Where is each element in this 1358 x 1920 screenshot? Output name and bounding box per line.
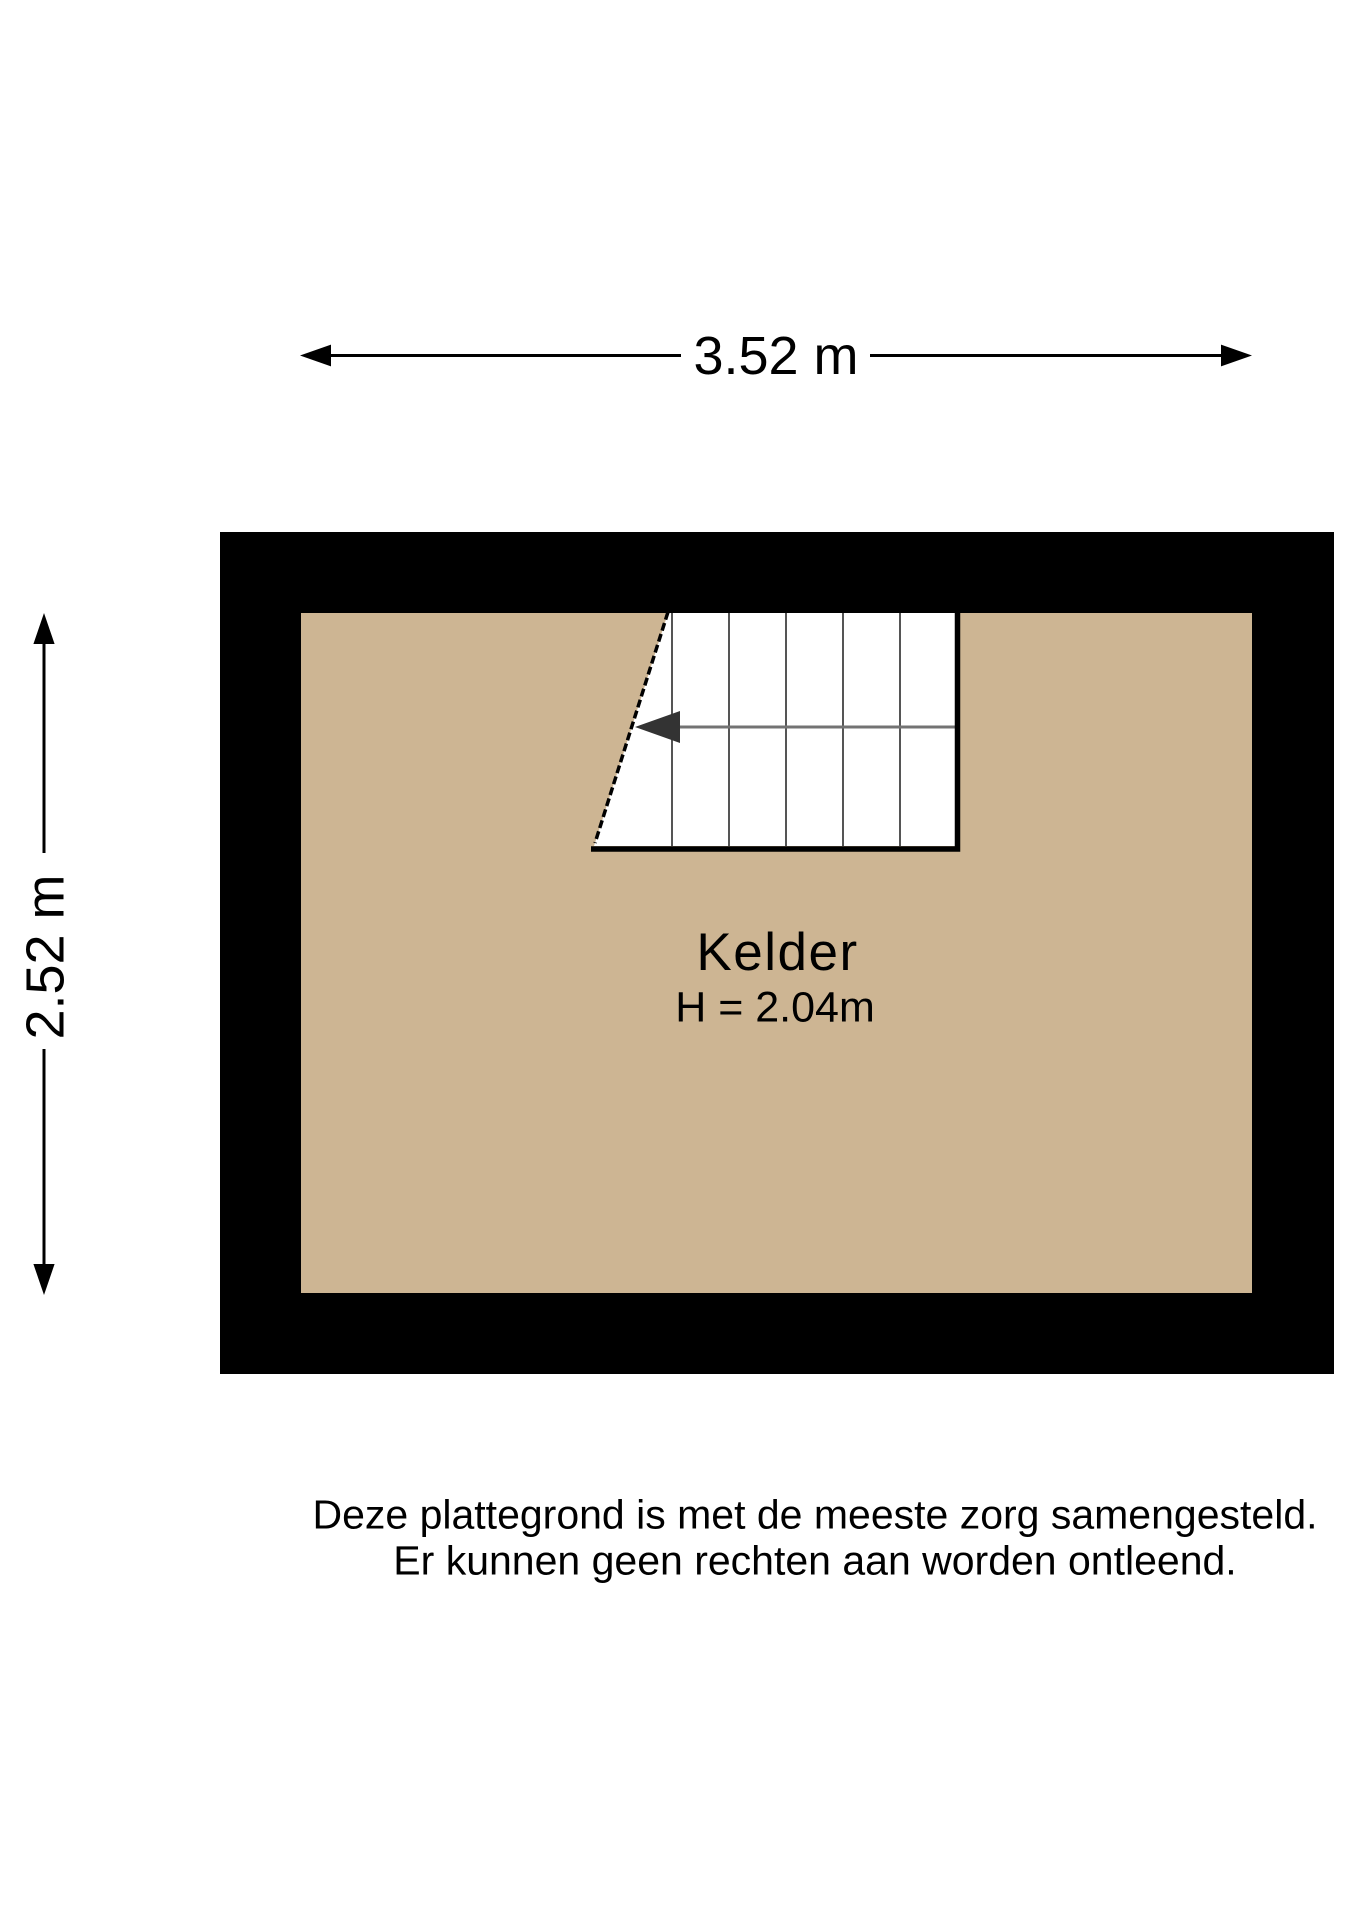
svg-text:3.52 m: 3.52 m (693, 326, 858, 386)
svg-text:Deze plattegrond is met de mee: Deze plattegrond is met de meeste zorg s… (312, 1492, 1317, 1538)
svg-text:Kelder: Kelder (696, 923, 858, 982)
svg-text:2.52 m: 2.52 m (16, 874, 76, 1039)
svg-text:Er kunnen geen rechten aan wor: Er kunnen geen rechten aan worden ontlee… (393, 1538, 1236, 1584)
svg-text:H = 2.04m: H = 2.04m (675, 984, 875, 1032)
